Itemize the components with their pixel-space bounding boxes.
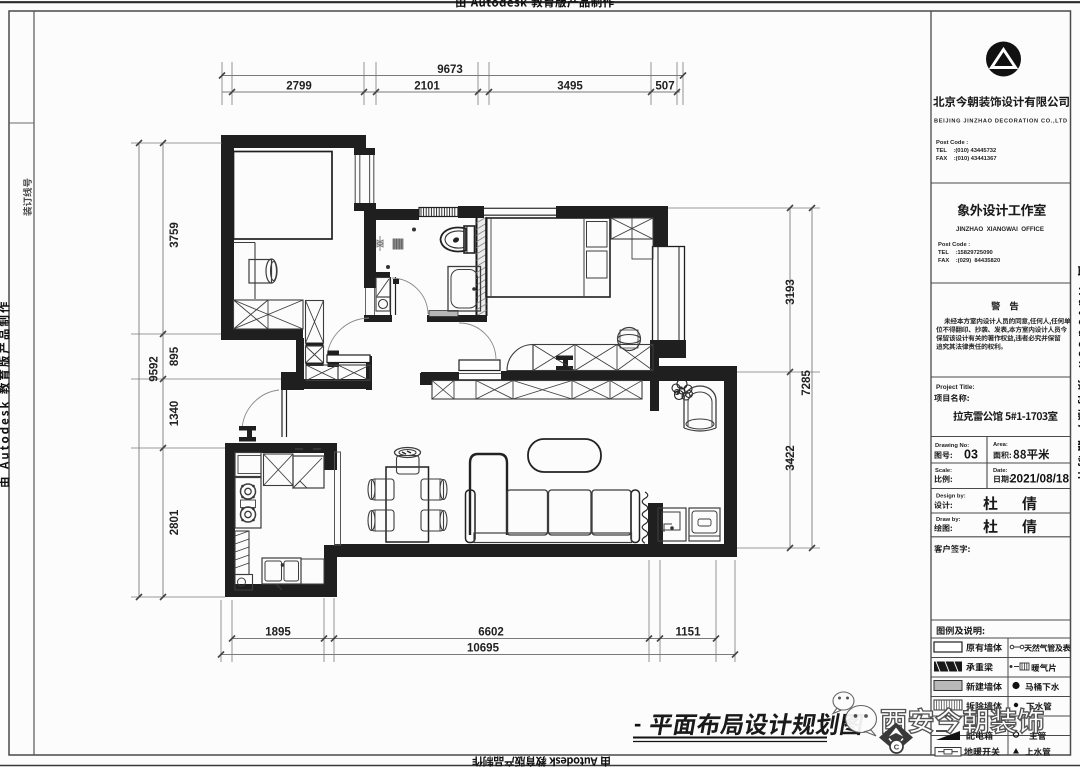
svg-text:Post Code :: Post Code : — [936, 140, 968, 146]
svg-text:Design by:: Design by: — [936, 494, 966, 500]
svg-text:Post Code :: Post Code : — [938, 242, 970, 248]
svg-text:03: 03 — [964, 448, 978, 462]
svg-text:C: C — [894, 743, 900, 752]
svg-text:Project Title:: Project Title: — [936, 384, 975, 391]
svg-text:Draw by:: Draw by: — [936, 517, 961, 523]
svg-text:-: - — [634, 711, 641, 736]
svg-text:895: 895 — [169, 346, 181, 366]
svg-text:507: 507 — [655, 81, 674, 93]
svg-text:7285: 7285 — [801, 370, 813, 396]
svg-text:3495: 3495 — [557, 81, 583, 93]
svg-text:TEL :(010) 43445732: TEL :(010) 43445732 — [936, 148, 996, 154]
svg-text:JINZHAO XIANGWAI OFFICE: JINZHAO XIANGWAI OFFICE — [956, 226, 1044, 233]
svg-text:2801: 2801 — [169, 509, 181, 535]
svg-text:2101: 2101 — [414, 81, 440, 93]
svg-text:1895: 1895 — [265, 627, 291, 639]
svg-text:FAX :(029) 84435820: FAX :(029) 84435820 — [938, 258, 1000, 264]
svg-text:Date:: Date: — [993, 468, 1008, 474]
svg-text:FAX :(010) 43441367: FAX :(010) 43441367 — [936, 156, 997, 162]
svg-text:10695: 10695 — [467, 643, 500, 655]
svg-text:3193: 3193 — [785, 279, 797, 305]
svg-text:BEIJING JINZHAO DECORATION CO.: BEIJING JINZHAO DECORATION CO.,LTD — [934, 119, 1067, 125]
svg-text:1151: 1151 — [676, 627, 702, 639]
svg-text:Scale:: Scale: — [935, 468, 952, 474]
svg-text:3759: 3759 — [169, 222, 181, 248]
svg-text:2799: 2799 — [286, 81, 312, 93]
svg-text:2021/08/18: 2021/08/18 — [1010, 472, 1069, 486]
svg-text:3422: 3422 — [785, 445, 797, 471]
svg-text:6602: 6602 — [478, 627, 504, 639]
svg-text:1340: 1340 — [169, 401, 181, 427]
svg-text:Area:: Area: — [993, 442, 1008, 448]
svg-text:TEL :15829725090: TEL :15829725090 — [938, 250, 993, 256]
svg-text:9592: 9592 — [149, 356, 161, 382]
svg-text:9673: 9673 — [437, 64, 463, 76]
